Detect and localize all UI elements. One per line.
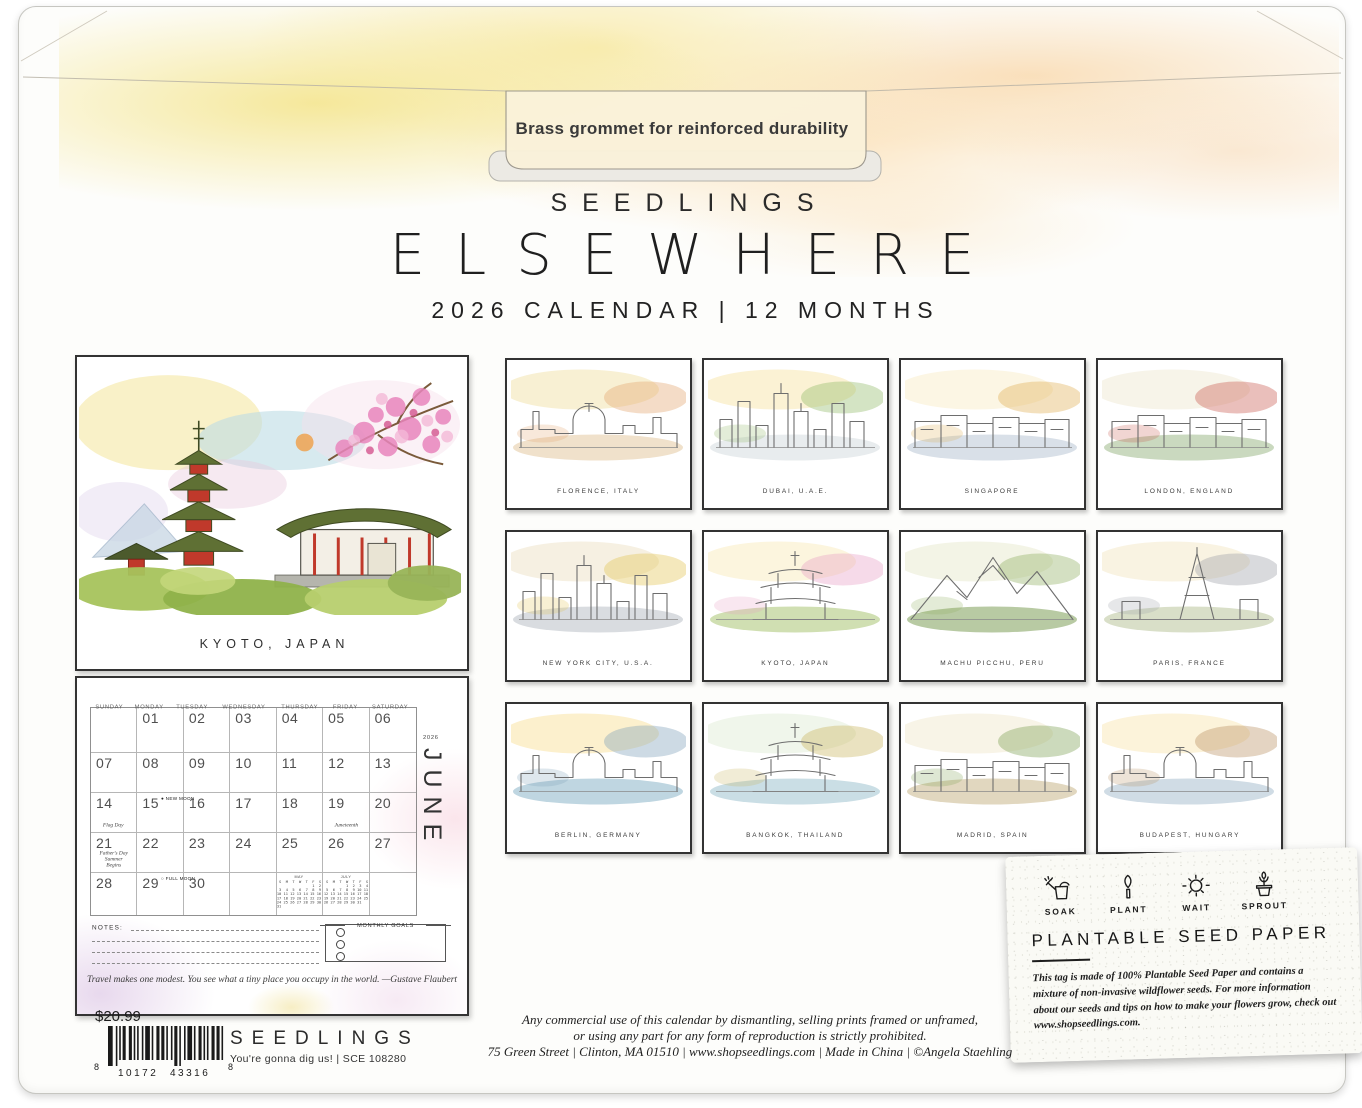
day-number: 02 (189, 710, 206, 726)
day-number: 24 (235, 835, 252, 851)
thumbnail-label: KYOTO, JAPAN (704, 653, 887, 671)
calendar-month: JUNE (417, 748, 446, 849)
thumbnail-label: MADRID, SPAIN (901, 825, 1084, 843)
holiday-label: Flag Day (91, 813, 136, 831)
notes-line (92, 931, 319, 942)
watering-can-icon (1044, 875, 1077, 904)
thumbnail-label-text: LONDON, ENGLAND (1145, 487, 1235, 494)
day-number: 06 (375, 710, 392, 726)
thumbnail-label: NEW YORK CITY, U.S.A. (507, 653, 690, 671)
calendar-cell: 18 (277, 793, 323, 833)
thumbnail-label: MACHU PICCHU, PERU (901, 653, 1084, 671)
city-sketch (1102, 536, 1277, 638)
notes-line (92, 942, 319, 953)
barcode: 8 10172 43316 8 (92, 1026, 242, 1082)
holiday-label: Juneteenth (323, 813, 368, 831)
legal-line: or using any part for any form of reprod… (400, 1028, 1100, 1044)
day-number: 29 (142, 875, 159, 891)
day-number: 23 (189, 835, 206, 851)
holiday-text: Juneteenth (334, 822, 358, 828)
day-number: 14 (96, 795, 113, 811)
product-photo: Brass grommet for reinforced durability … (0, 0, 1362, 1108)
trowel-icon (1112, 873, 1145, 902)
calendar-cell: 10 (230, 753, 276, 793)
thumbnail-label: LONDON, ENGLAND (1098, 481, 1281, 499)
barcode-bars (108, 1026, 224, 1068)
day-number: 15 (142, 795, 159, 811)
calendar-cell: 04 (277, 708, 323, 753)
mini-month: MAY S M T W T F S 1 2 3 4 5 6 7 8 9 10 1… (276, 875, 324, 909)
day-number: 05 (328, 710, 345, 726)
seed-step-label: WAIT (1182, 902, 1211, 913)
seed-step: WAIT (1168, 871, 1225, 914)
thumbnail-label: SINGAPORE (901, 481, 1084, 499)
goal-checkbox (336, 952, 345, 961)
day-number: 17 (235, 795, 252, 811)
city-sketch (905, 536, 1080, 638)
calendar-cell (370, 873, 416, 915)
monthly-quote: Travel makes one modest. You see what a … (77, 975, 467, 985)
city-sketch (1102, 364, 1277, 466)
holiday-label: Father's Day Summer Begins (91, 841, 136, 871)
notes-line (131, 923, 319, 931)
calendar-cell: 30 (184, 873, 230, 915)
calendar-cell: 08 (137, 753, 183, 793)
barcode-digit: 8 (94, 1062, 99, 1072)
city-sketch (708, 364, 883, 466)
thumbnail-label-text: BUDAPEST, HUNGARY (1139, 831, 1240, 838)
thumbnail-label-text: KYOTO, JAPAN (761, 659, 829, 666)
calendar-cell: 22 (137, 833, 183, 873)
city-sketch (511, 536, 686, 638)
notes-section: NOTES: (92, 922, 319, 964)
barcode-digits: 43316 (168, 1068, 212, 1079)
day-number: 09 (189, 755, 206, 771)
city-sketch (1102, 708, 1277, 810)
thumbnail-card: KYOTO, JAPAN (702, 530, 889, 682)
thumbnail-card: NEW YORK CITY, U.S.A. (505, 530, 692, 682)
address-line: 75 Green Street | Clinton, MA 01510 | ww… (400, 1044, 1100, 1060)
legal-text: Any commercial use of this calendar by d… (400, 1012, 1100, 1060)
thumbnail-label: BERLIN, GERMANY (507, 825, 690, 843)
thumbnail-card: LONDON, ENGLAND (1096, 358, 1283, 510)
thumbnails-grid: FLORENCE, ITALYDUBAI, U.A.E.SINGAPORELON… (505, 358, 1315, 854)
day-number: 13 (375, 755, 392, 771)
thumbnail-label-text: BERLIN, GERMANY (555, 831, 642, 838)
thumbnail-card: MACHU PICCHU, PERU (899, 530, 1086, 682)
calendar-cell: 14Flag Day (91, 793, 137, 833)
day-number: 08 (142, 755, 159, 771)
seed-step-label: SPROUT (1241, 900, 1287, 911)
day-number: 03 (235, 710, 252, 726)
calendar-cell: 29○ FULL MOON (137, 873, 183, 915)
footer-tagline: You're gonna dig us! | SCE 108280 (230, 1053, 406, 1065)
day-number: 18 (282, 795, 299, 811)
thumbnail-label-text: MACHU PICCHU, PERU (940, 659, 1044, 666)
thumbnail-label-text: NEW YORK CITY, U.S.A. (543, 659, 654, 666)
calendar-cell: MAY S M T W T F S 1 2 3 4 5 6 7 8 9 10 1… (277, 873, 323, 915)
calendar-cell (91, 708, 137, 753)
calendar-cell: 01 (137, 708, 183, 753)
calendar-cell: 06 (370, 708, 416, 753)
thumbnail-card: MADRID, SPAIN (899, 702, 1086, 854)
day-number: 16 (189, 795, 206, 811)
featured-city-label: KYOTO, JAPAN (77, 637, 467, 651)
day-number: 11 (282, 755, 298, 771)
calendar-cell: 07 (91, 753, 137, 793)
day-number: 20 (375, 795, 392, 811)
day-number: 27 (375, 835, 392, 851)
calendar-cell: 03 (230, 708, 276, 753)
thumbnail-label: BANGKOK, THAILAND (704, 825, 887, 843)
calendar-cell: 27 (370, 833, 416, 873)
day-number: 19 (328, 795, 345, 811)
mini-month: JULY S M T W T F S 1 2 3 4 5 6 7 8 9 10 … (322, 875, 370, 904)
thumbnail-card: BANGKOK, THAILAND (702, 702, 889, 854)
seed-steps: SOAKPLANTWAITSPROUT (1032, 868, 1335, 917)
day-number: 25 (282, 835, 299, 851)
day-number: 07 (96, 755, 113, 771)
mini-month-name: MAY (276, 875, 324, 879)
city-sketch (708, 708, 883, 810)
day-number: 10 (235, 755, 252, 771)
thumbnail-label-text: SINGAPORE (965, 487, 1020, 494)
holiday-text: Flag Day (103, 822, 124, 828)
monthly-goals-box: MONTHLY GOALS (325, 924, 446, 962)
sun-icon (1180, 871, 1213, 900)
day-number: 01 (142, 710, 159, 726)
city-sketch (905, 364, 1080, 466)
day-number: 12 (328, 755, 345, 771)
seed-step: SOAK (1032, 875, 1089, 918)
notes-line (92, 953, 319, 964)
goal-checkbox (336, 940, 345, 949)
calendar-cell: 19Juneteenth (323, 793, 369, 833)
thumbnail-label-text: DUBAI, U.A.E. (763, 487, 829, 494)
thumbnail-card: BERLIN, GERMANY (505, 702, 692, 854)
calendar-cell: 15● NEW MOON (137, 793, 183, 833)
calendar-cell: 21Father's Day Summer Begins (91, 833, 137, 873)
calendar-cell: 23 (184, 833, 230, 873)
calendar-cell: 20 (370, 793, 416, 833)
thumbnail-card: PARIS, FRANCE (1096, 530, 1283, 682)
thumbnail-label: FLORENCE, ITALY (507, 481, 690, 499)
calendar-cell: 24 (230, 833, 276, 873)
monthly-goals-label: MONTHLY GOALS (357, 922, 414, 928)
thumbnail-label-text: MADRID, SPAIN (957, 831, 1029, 838)
notes-label: NOTES: (92, 924, 123, 931)
mini-month-grid: S M T W T F S 1 2 3 4 5 6 7 8 9 10 11 12… (276, 880, 324, 909)
thumbnail-label-text: FLORENCE, ITALY (557, 487, 640, 494)
thumbnail-label-text: PARIS, FRANCE (1153, 659, 1226, 666)
holiday-text: Father's Day Summer Begins (98, 850, 129, 868)
thumbnail-label-text: BANGKOK, THAILAND (746, 831, 844, 838)
kyoto-artwork (79, 361, 461, 615)
mini-month-grid: S M T W T F S 1 2 3 4 5 6 7 8 9 10 11 12… (322, 880, 370, 905)
thumbnail-label: DUBAI, U.A.E. (704, 481, 887, 499)
legal-line: Any commercial use of this calendar by d… (400, 1012, 1100, 1028)
seed-step: SPROUT (1236, 869, 1293, 912)
calendar-cell: 28 (91, 873, 137, 915)
thumbnail-card: BUDAPEST, HUNGARY (1096, 702, 1283, 854)
calendar-cell: 13 (370, 753, 416, 793)
calendar-cell: 25 (277, 833, 323, 873)
brand-wordmark: SEEDLINGS (19, 189, 1345, 218)
barcode-digits: 10172 (116, 1068, 160, 1079)
seed-tag-title: PLANTABLE SEED PAPER (1031, 923, 1335, 951)
calendar-cell: 05 (323, 708, 369, 753)
day-number: 26 (328, 835, 345, 851)
grommet-note: Brass grommet for reinforced durability (19, 119, 1345, 139)
featured-artwork-card: KYOTO, JAPAN (75, 355, 469, 671)
price: $20.99 (95, 1008, 141, 1025)
calendar-cell: 16 (184, 793, 230, 833)
calendar-page-preview: SUNDAYMONDAYTUESDAYWEDNESDAYTHURSDAYFRID… (75, 676, 469, 1016)
city-sketch (708, 536, 883, 638)
thumbnail-label: BUDAPEST, HUNGARY (1098, 825, 1281, 843)
product-subtitle: 2026 CALENDAR | 12 MONTHS (19, 297, 1345, 324)
mini-month-name: JULY (322, 875, 370, 879)
thumbnail-card: DUBAI, U.A.E. (702, 358, 889, 510)
day-number: 28 (96, 875, 113, 891)
divider (1032, 959, 1090, 963)
seed-step: PLANT (1100, 873, 1157, 916)
calendar-cell: 11 (277, 753, 323, 793)
calendar-cell: 17 (230, 793, 276, 833)
day-number: 30 (189, 875, 206, 891)
product-title: ELSEWHERE (19, 223, 1345, 288)
sprout-pot-icon (1248, 869, 1281, 898)
calendar-year: 2026 (423, 734, 439, 740)
footer-brand-wordmark: SEEDLINGS (230, 1028, 420, 1050)
thumbnail-card: SINGAPORE (899, 358, 1086, 510)
calendar-cell: JULY S M T W T F S 1 2 3 4 5 6 7 8 9 10 … (323, 873, 369, 915)
thumbnail-card: FLORENCE, ITALY (505, 358, 692, 510)
thumbnail-label: PARIS, FRANCE (1098, 653, 1281, 671)
seed-step-label: PLANT (1110, 904, 1148, 915)
city-sketch (905, 708, 1080, 810)
calendar-cell: 09 (184, 753, 230, 793)
calendar-cell (230, 873, 276, 915)
day-number: 04 (282, 710, 299, 726)
calendar-cell: 02 (184, 708, 230, 753)
calendar-cell: 12 (323, 753, 369, 793)
city-sketch (511, 364, 686, 466)
day-number: 22 (142, 835, 159, 851)
calendar-grid: 0102030405060708091011121314Flag Day15● … (90, 707, 417, 916)
city-sketch (511, 708, 686, 810)
calendar-cell: 26 (323, 833, 369, 873)
seed-step-label: SOAK (1045, 906, 1077, 917)
